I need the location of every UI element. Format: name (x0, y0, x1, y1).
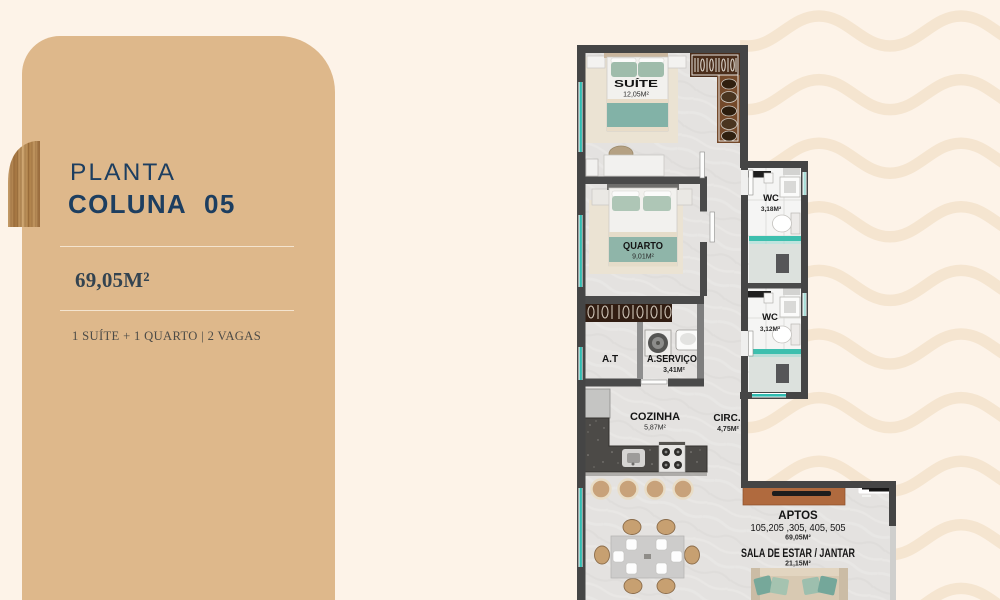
svg-text:4,75M²: 4,75M² (717, 426, 739, 433)
svg-text:A.T: A.T (602, 354, 618, 365)
svg-text:A.SERVIÇO: A.SERVIÇO (647, 354, 697, 365)
svg-text:12,05M²: 12,05M² (623, 92, 649, 99)
svg-text:APTOS: APTOS (778, 510, 818, 522)
svg-text:WC: WC (763, 193, 779, 204)
svg-text:QUARTO: QUARTO (623, 240, 663, 252)
svg-text:3,41M²: 3,41M² (663, 367, 685, 374)
svg-text:SUÍTE: SUÍTE (614, 77, 658, 90)
svg-text:3,18M²: 3,18M² (761, 206, 782, 213)
svg-text:CIRC.: CIRC. (713, 413, 740, 424)
svg-text:21,15M²: 21,15M² (785, 561, 811, 568)
svg-text:69,05M²: 69,05M² (785, 535, 811, 542)
svg-text:WC: WC (762, 312, 778, 323)
svg-text:3,12M²: 3,12M² (760, 326, 781, 333)
svg-text:SALA DE ESTAR / JANTAR: SALA DE ESTAR / JANTAR (741, 548, 856, 560)
svg-text:5,87M²: 5,87M² (644, 425, 666, 432)
svg-text:COZINHA: COZINHA (630, 411, 680, 423)
svg-text:105,205 ,305, 405, 505: 105,205 ,305, 405, 505 (751, 522, 846, 534)
svg-text:9,01M²: 9,01M² (632, 254, 654, 261)
